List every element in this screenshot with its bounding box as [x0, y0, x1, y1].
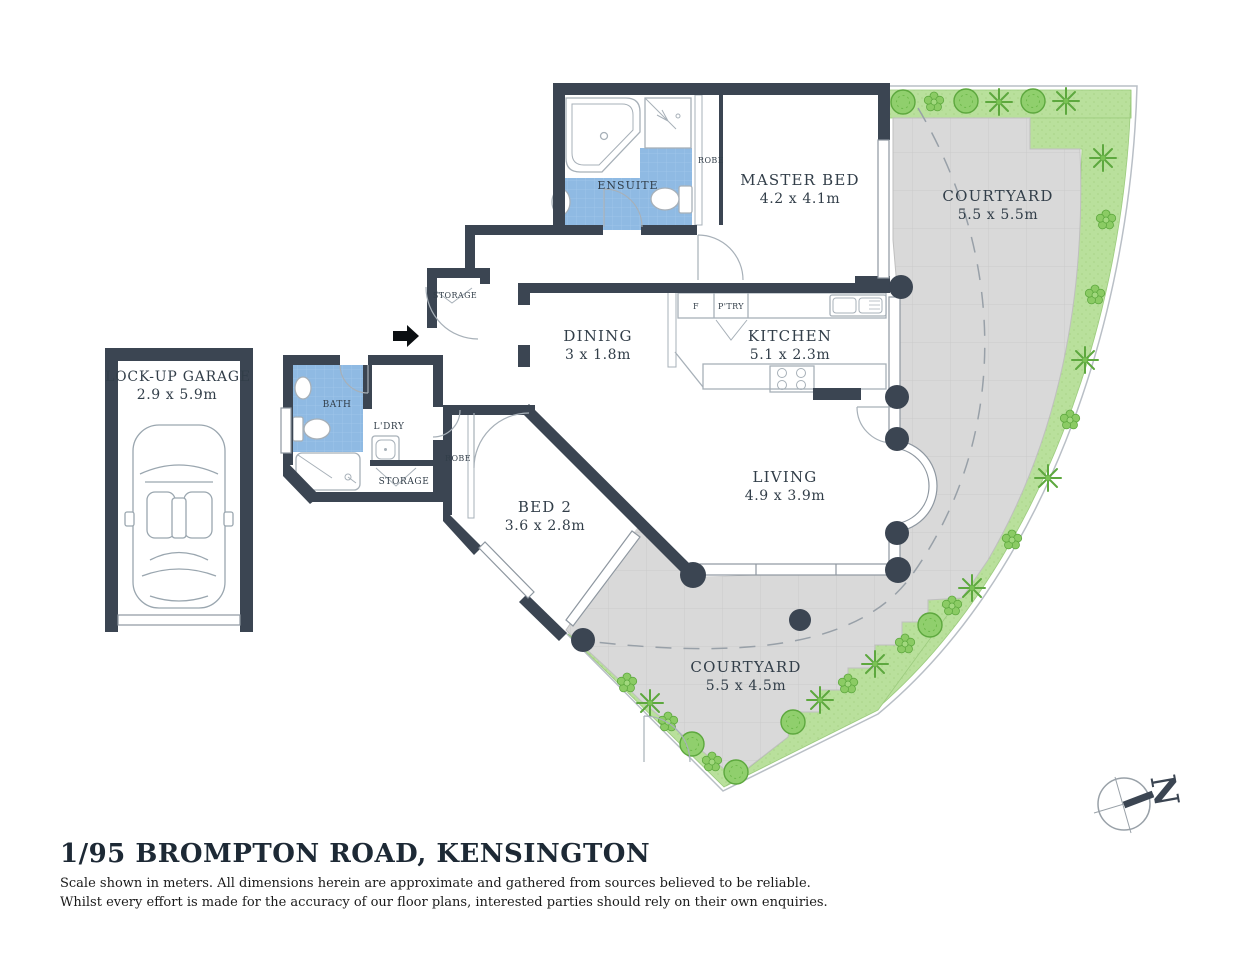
label-dining: DINING: [563, 327, 632, 345]
toilet-bowl-bath: [304, 419, 330, 439]
dims-courtyard-s: 5.5 x 4.5m: [706, 678, 787, 694]
dims-dining: 3 x 1.8m: [565, 347, 631, 363]
floorplan-page: ENSUITE ROBE MASTER BED 4.2 x 4.1m COURT…: [0, 0, 1242, 960]
car-console: [172, 498, 186, 538]
label-ensuite: ENSUITE: [597, 179, 658, 192]
north-letter: N: [1142, 772, 1187, 810]
basin-bath: [295, 377, 311, 399]
kitchen-window: [889, 297, 900, 392]
car-seat-left: [147, 492, 175, 538]
label-bed2: BED 2: [518, 498, 572, 516]
floor-plan-drawing: ENSUITE ROBE MASTER BED 4.2 x 4.1m COURT…: [0, 0, 1242, 960]
label-living: LIVING: [753, 468, 818, 486]
label-garage: LOCK-UP GARAGE: [105, 369, 251, 385]
label-courtyard-s: COURTYARD: [690, 658, 801, 676]
master-window: [878, 140, 889, 278]
label-fridge: F: [693, 302, 699, 311]
bath-window: [281, 408, 291, 453]
disclaimer-line2: Whilst every effort is made for the accu…: [60, 894, 960, 913]
label-entry-storage: STORAGE: [433, 291, 477, 300]
entry-arrow-icon: [393, 325, 419, 347]
label-pantry: P'TRY: [718, 302, 744, 311]
garage-door: [118, 615, 240, 625]
label-bed2-robe: ROBE: [445, 454, 471, 463]
car-mirror-right: [224, 512, 233, 526]
label-bath: BATH: [323, 400, 352, 410]
label-kitchen: KITCHEN: [748, 327, 832, 345]
car-mirror-left: [125, 512, 134, 526]
toilet-ensuite: [679, 186, 692, 213]
car-top-view: [125, 425, 233, 608]
label-courtyard-ne: COURTYARD: [942, 187, 1053, 205]
kitchen-peninsula-bench: [703, 364, 886, 389]
dims-bed2: 3.6 x 2.8m: [505, 518, 586, 534]
label-master-robe: ROBE: [698, 156, 724, 165]
car-seat-right: [184, 492, 212, 538]
label-master-bed: MASTER BED: [740, 171, 859, 189]
north-compass: N: [1094, 772, 1186, 833]
living-window: [700, 564, 890, 575]
dims-courtyard-ne: 5.5 x 5.5m: [958, 207, 1039, 223]
dims-living: 4.9 x 3.9m: [745, 488, 826, 504]
toilet-bath: [293, 417, 303, 441]
dims-garage: 2.9 x 5.9m: [137, 387, 218, 403]
label-laundry: L'DRY: [373, 422, 405, 432]
page-title: 1/95 BROMPTON ROAD, KENSINGTON: [60, 840, 960, 869]
dims-master-bed: 4.2 x 4.1m: [760, 191, 841, 207]
address-block: 1/95 BROMPTON ROAD, KENSINGTON Scale sho…: [60, 840, 960, 913]
label-hall-storage: STORAGE: [379, 477, 430, 487]
disclaimer-line1: Scale shown in meters. All dimensions he…: [60, 875, 960, 894]
dims-kitchen: 5.1 x 2.3m: [750, 347, 831, 363]
